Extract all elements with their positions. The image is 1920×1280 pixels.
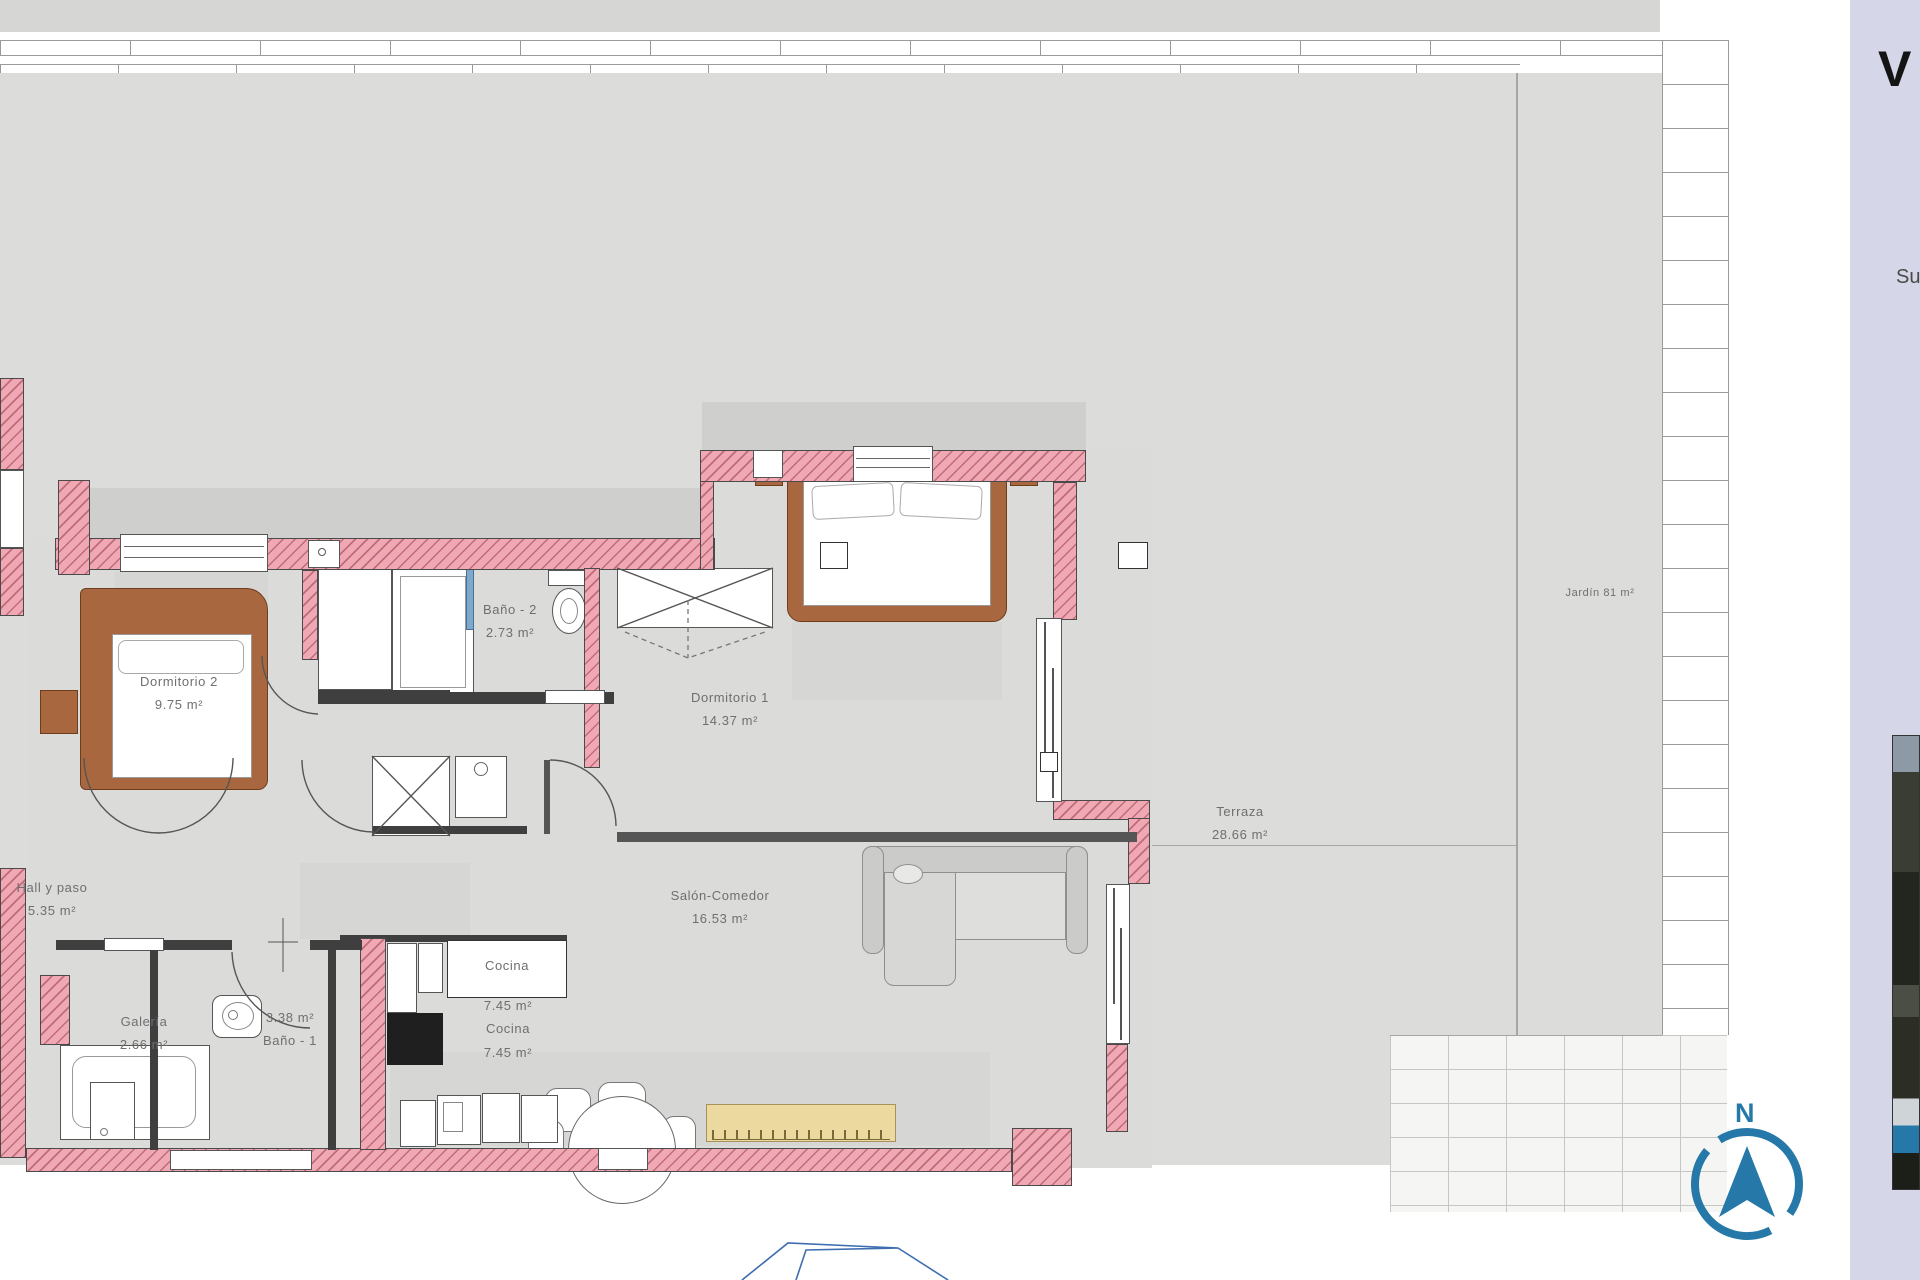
door-arc-hall-right (158, 758, 233, 833)
room-area: 2.73 m² (462, 621, 558, 644)
room-area: 7.45 m² (450, 1041, 566, 1064)
room-name: Dormitorio 2 (118, 670, 240, 693)
room-name: Galería (98, 1010, 190, 1033)
label-cocina-counter: Cocina (449, 954, 565, 977)
label-salon: Salón-Comedor 16.53 m² (638, 884, 802, 931)
room-area: 2.66 m² (98, 1033, 190, 1056)
room-name: Cocina (450, 1017, 566, 1040)
room-area: 7.45 m² (450, 994, 566, 1017)
blue-wireframe-fragment (742, 1243, 948, 1280)
north-arrow-icon (1719, 1146, 1775, 1217)
room-name: Baño - 1 (242, 1029, 338, 1052)
wardrobe-rail-dashes (625, 632, 765, 658)
floor-plan-page: Dormitorio 2 9.75 m² Baño - 2 2.73 m² Do… (0, 0, 1920, 1280)
room-area: 5.35 m² (0, 899, 114, 922)
label-dorm2: Dormitorio 2 9.75 m² (118, 670, 240, 717)
room-name: Baño - 2 (462, 598, 558, 621)
label-cocina-floor: 7.45 m² Cocina 7.45 m² (450, 994, 566, 1064)
label-hall: Hall y paso 5.35 m² (0, 876, 114, 923)
door-arc-hall-left (84, 758, 159, 833)
room-area: 3.38 m² (242, 1006, 338, 1029)
room-name: Salón-Comedor (638, 884, 802, 907)
compass: N (1682, 1096, 1812, 1248)
door-arc-dorm2 (262, 656, 318, 714)
room-name: Terraza (1188, 800, 1292, 823)
room-name: Cocina (449, 954, 565, 977)
sidebar-caption-partial: Su (1896, 266, 1920, 289)
label-jardin: Jardín 81 m² (1540, 584, 1660, 604)
room-name: Hall y paso (0, 876, 114, 899)
label-galeria: Galería 2.66 m² (98, 1010, 190, 1057)
door-arc-niche-left (302, 760, 374, 832)
room-area: 9.75 m² (118, 693, 240, 716)
room-name: Dormitorio 1 (650, 686, 810, 709)
plan-annotation-layer (0, 0, 1920, 1280)
room-area: 28.66 m² (1188, 823, 1292, 846)
sidebar-heading-partial: V (1878, 40, 1913, 98)
label-terraza: Terraza 28.66 m² (1188, 800, 1292, 847)
door-arc-dorm1 (550, 760, 616, 826)
label-dorm1: Dormitorio 1 14.37 m² (650, 686, 810, 733)
label-bano2: Baño - 2 2.73 m² (462, 598, 558, 645)
sidebar-photo-strip (1892, 735, 1920, 1190)
label-bano1: 3.38 m² Baño - 1 (242, 1006, 338, 1053)
room-area: 14.37 m² (650, 709, 810, 732)
compass-north-label: N (1735, 1098, 1755, 1129)
room-area: 16.53 m² (638, 907, 802, 930)
